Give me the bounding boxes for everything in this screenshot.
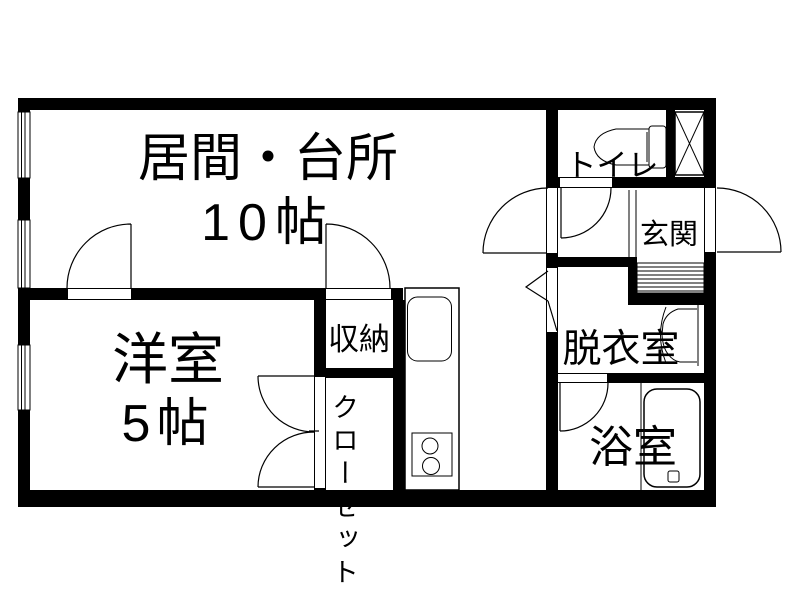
- door-hall: [483, 188, 548, 253]
- floor-plan: 居間・台所 10帖 洋室 5帖 収納 クローゼット トイレ 玄関 脱衣室 浴室: [0, 0, 800, 600]
- windows: [18, 112, 30, 410]
- kitchen-counter: [405, 288, 459, 490]
- room-label-western-room: 洋室 5帖: [58, 328, 278, 456]
- wall-storage-divider: [314, 368, 405, 378]
- kitchen-sink-icon: [408, 297, 452, 361]
- room-label-living-kitchen: 居間・台所 10帖: [98, 127, 438, 255]
- window-bedroom: [18, 345, 30, 410]
- wall-dressing-south: [607, 373, 716, 383]
- wall-meter-divider: [666, 110, 675, 177]
- window-living-2: [18, 220, 30, 288]
- opening-bathroom-door: [558, 373, 607, 383]
- door-entrance: [717, 188, 781, 252]
- room-label-toilet: トイレ: [562, 140, 662, 185]
- wall-top: [18, 98, 716, 110]
- room-label-dressing-room: 脱衣室: [521, 318, 721, 374]
- wall-bottom: [18, 490, 716, 507]
- room-label-bathroom: 浴室: [533, 411, 733, 475]
- western-room-size: 5帖: [58, 392, 278, 456]
- wall-hall-south: [558, 257, 637, 267]
- western-room-name: 洋室: [58, 328, 278, 392]
- room-label-closet: クローゼット: [327, 393, 358, 497]
- window-living-1: [18, 112, 30, 178]
- room-label-entrance: 玄関: [619, 211, 719, 253]
- floor-plan-drawing: [0, 0, 800, 600]
- opening-closet-door: [314, 377, 326, 488]
- opening-hall-door: [546, 188, 558, 253]
- wall-entrance-south: [628, 293, 716, 305]
- opening-storage-door: [326, 288, 391, 300]
- opening-bedroom-door: [68, 288, 131, 300]
- living-kitchen-size: 10帖: [98, 191, 438, 255]
- door-toilet: [561, 188, 611, 238]
- room-label-storage: 収納: [319, 314, 399, 359]
- meter-box-icon: [675, 112, 704, 175]
- entrance-step-hatch: [637, 263, 704, 293]
- living-kitchen-name: 居間・台所: [98, 127, 438, 191]
